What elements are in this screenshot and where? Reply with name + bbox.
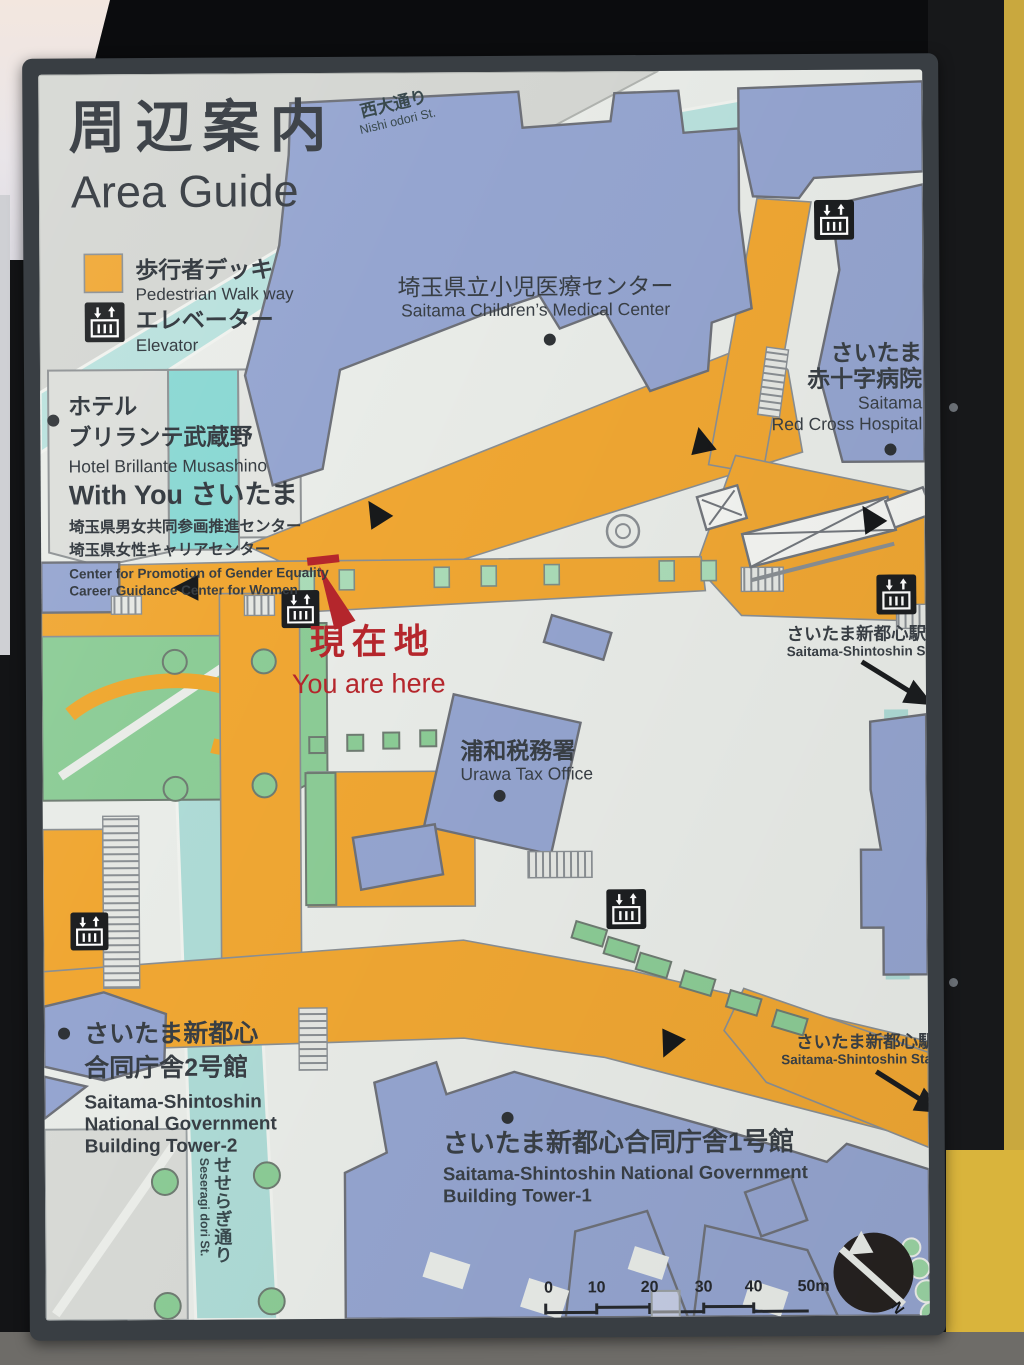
fountain-icon — [607, 515, 639, 547]
label-medical-center: 埼玉県立小児医療センター Saitama Children’s Medical … — [397, 273, 673, 321]
legend-elevator-en: Elevator — [136, 336, 198, 356]
legend-walkway-swatch — [84, 254, 122, 292]
photo-background: 周辺案内 Area Guide 歩行者デッキ Pedestrian Walk w… — [0, 0, 1024, 1365]
scale-tick: 20 — [641, 1279, 659, 1297]
area-map: 周辺案内 Area Guide 歩行者デッキ Pedestrian Walk w… — [38, 69, 930, 1320]
elevator-icon — [70, 912, 108, 950]
elevator-icon — [814, 200, 854, 240]
legend-elevator-jp: エレベーター — [136, 306, 274, 333]
label-tower1: さいたま新都心合同庁舎1号館 Saitama-Shintoshin Nation… — [443, 1127, 808, 1207]
frame-screw — [949, 403, 958, 412]
label-urawa-tax-office: 浦和税務署 Urawa Tax Office — [460, 737, 593, 784]
page-title-jp: 周辺案内 — [68, 95, 336, 162]
signboard: 周辺案内 Area Guide 歩行者デッキ Pedestrian Walk w… — [22, 53, 946, 1341]
elevator-icon — [876, 574, 916, 614]
elevator-icon — [606, 889, 646, 929]
label-station-lower: さいたま新都心駅 Saitama-Shintoshin Sta. — [766, 1031, 930, 1068]
label-station-upper: さいたま新都心駅 Saitama-Shintoshin Sta. — [787, 623, 930, 660]
elevator-icon — [85, 302, 125, 342]
scale-tick: 50m — [798, 1278, 830, 1296]
background-railing — [0, 195, 10, 655]
label-red-cross-hospital: さいたま 赤十字病院 Saitama Red Cross Hospital — [680, 339, 923, 435]
scale-tick: 30 — [695, 1279, 713, 1297]
you-are-here-en: You are here — [292, 668, 446, 700]
scale-tick: 40 — [745, 1278, 763, 1296]
legend-walkway-jp: 歩行者デッキ — [135, 256, 273, 283]
street-label-seseragi: せせらぎ通り Seseragi dori St. — [197, 1156, 234, 1321]
legend-walkway-en: Pedestrian Walk way — [135, 284, 293, 305]
scale-tick: 0 — [544, 1280, 553, 1298]
label-hotel-brillante: ホテル ブリランテ武蔵野 Hotel Brillante Musashino W… — [68, 390, 329, 601]
page-title-en: Area Guide — [71, 165, 299, 218]
frame-screw — [949, 978, 958, 987]
label-tower2: さいたま新都心 合同庁舎2号館 Saitama-Shintoshin Natio… — [84, 1017, 277, 1159]
scale-tick: 10 — [588, 1279, 606, 1297]
you-are-here-jp: 現在地 — [310, 622, 436, 663]
